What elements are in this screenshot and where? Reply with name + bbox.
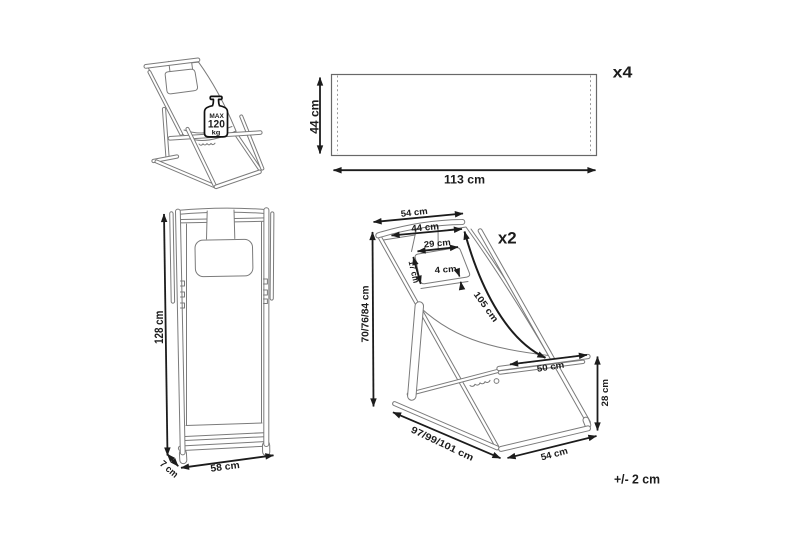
svg-text:kg: kg (212, 129, 221, 136)
svg-text:113 cm: 113 cm (444, 173, 485, 187)
svg-text:+/- 2 cm: +/- 2 cm (614, 472, 660, 487)
svg-text:128 cm: 128 cm (152, 311, 166, 344)
svg-text:44 cm: 44 cm (308, 100, 322, 134)
svg-text:x2: x2 (498, 230, 517, 248)
svg-text:4 cm: 4 cm (434, 264, 457, 276)
svg-text:28 cm: 28 cm (600, 379, 610, 407)
svg-text:70/76/84 cm: 70/76/84 cm (361, 285, 372, 342)
svg-text:x4: x4 (613, 65, 633, 82)
